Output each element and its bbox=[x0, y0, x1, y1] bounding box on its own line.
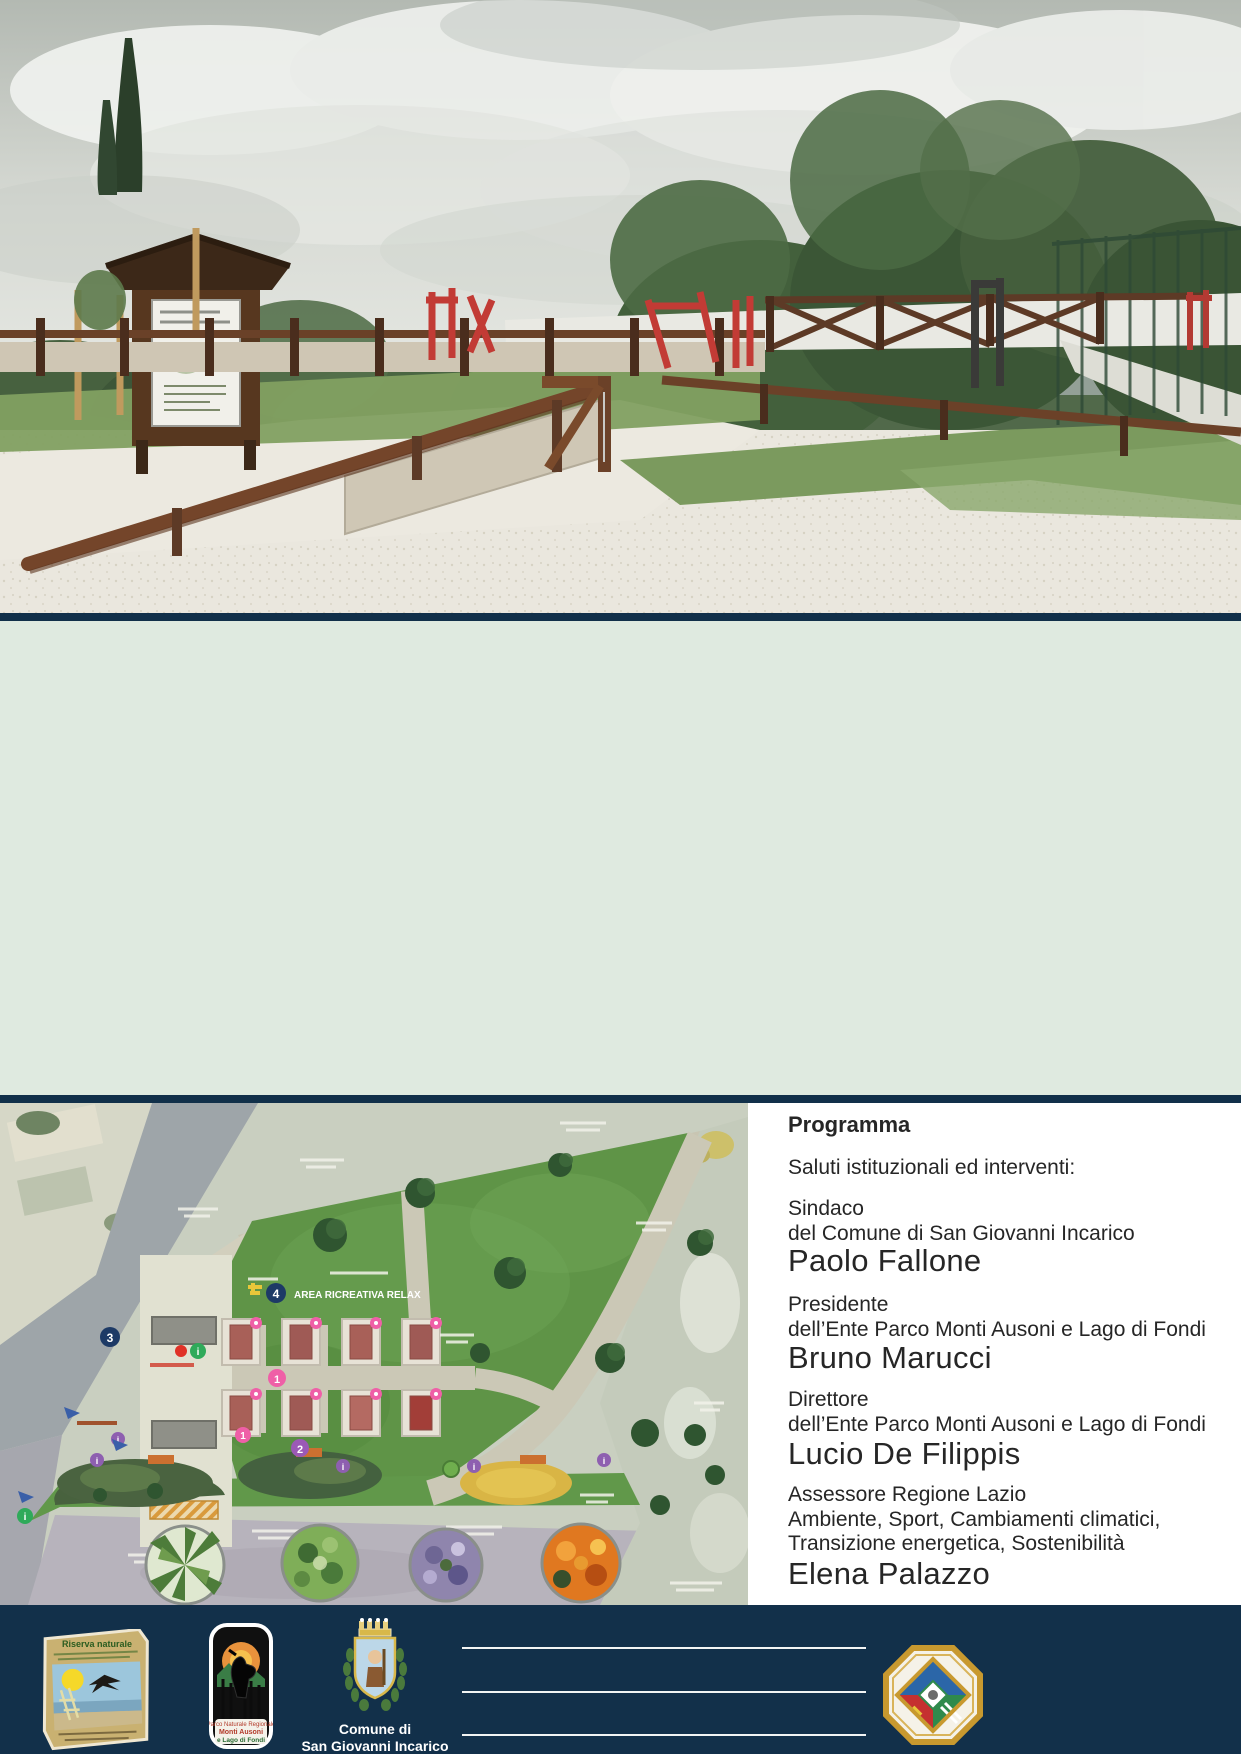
park-photo-illustration bbox=[0, 0, 1241, 617]
program-role-4: Assessore Regione Lazio bbox=[788, 1483, 1026, 1507]
rule-line-2 bbox=[462, 1691, 866, 1693]
divider-middle bbox=[0, 1095, 1241, 1103]
comune-caption-line1: Comune di bbox=[295, 1722, 455, 1737]
svg-text:i: i bbox=[342, 1462, 345, 1472]
program-role-3: Direttore bbox=[788, 1388, 869, 1412]
marker-2: 2 bbox=[297, 1444, 303, 1456]
program-intro: Saluti istituzionali ed interventi: bbox=[788, 1156, 1075, 1180]
program-org-3: dell’Ente Parco Monti Ausoni e Lago di F… bbox=[788, 1413, 1206, 1437]
program-role-1: Sindaco bbox=[788, 1197, 864, 1221]
divider-top bbox=[0, 613, 1241, 621]
footer-bar: Riserva naturale Parco Naturale Regional… bbox=[0, 1605, 1241, 1754]
program-org-4a: Ambiente, Sport, Cambiamenti climatici, bbox=[788, 1508, 1160, 1532]
parco-logo-line3: e Lago di Fondi bbox=[217, 1737, 265, 1744]
svg-text:i: i bbox=[96, 1456, 99, 1466]
crown-icon bbox=[359, 1618, 391, 1636]
orange-flowers-circle bbox=[542, 1524, 620, 1602]
program-name-2: Bruno Marucci bbox=[788, 1340, 992, 1376]
marker-4: 4 bbox=[273, 1287, 280, 1301]
program-name-3: Lucio De Filippis bbox=[788, 1436, 1021, 1472]
svg-text:i: i bbox=[473, 1462, 476, 1472]
svg-text:i: i bbox=[603, 1456, 606, 1466]
marker-3: 3 bbox=[107, 1331, 114, 1345]
riserva-naturale-logo: Riserva naturale bbox=[41, 1629, 154, 1751]
regione-lazio-emblem bbox=[883, 1645, 983, 1745]
comune-caption-line2: San Giovanni Incarico bbox=[295, 1739, 455, 1754]
marker-1b: 1 bbox=[240, 1431, 246, 1442]
agave-circle bbox=[146, 1526, 224, 1604]
park-site-plan: 3 4 AREA RICREATIVA RELAX i 1 1 2 i i i bbox=[0, 1103, 748, 1605]
marker-1: 1 bbox=[274, 1374, 280, 1386]
program-name-4: Elena Palazzo bbox=[788, 1556, 990, 1592]
hero-photo bbox=[0, 0, 1241, 617]
parco-logo-line2: Monti Ausoni bbox=[219, 1729, 263, 1736]
program-heading: Programma bbox=[788, 1112, 910, 1138]
program-name-1: Paolo Fallone bbox=[788, 1243, 981, 1279]
leafy-circle bbox=[282, 1525, 358, 1601]
title-banner: Inaugurazione FITNESS PARK Percorso per … bbox=[0, 621, 1241, 1095]
marker-info-green: i bbox=[197, 1347, 200, 1358]
marker-info-green-2: i bbox=[24, 1512, 27, 1523]
comune-crest-logo bbox=[340, 1615, 410, 1721]
event-poster: Inaugurazione FITNESS PARK Percorso per … bbox=[0, 0, 1241, 1754]
lavender-circle bbox=[410, 1529, 482, 1601]
rule-line-3 bbox=[462, 1734, 866, 1736]
rule-line-1 bbox=[462, 1647, 866, 1649]
parco-logo-line1: Parco Naturale Regionale bbox=[209, 1722, 273, 1728]
program-org-2: dell’Ente Parco Monti Ausoni e Lago di F… bbox=[788, 1318, 1206, 1342]
program-role-2: Presidente bbox=[788, 1293, 888, 1317]
riserva-logo-title: Riserva naturale bbox=[62, 1639, 132, 1649]
lower-section: 3 4 AREA RICREATIVA RELAX i 1 1 2 i i i bbox=[0, 1103, 1241, 1605]
program-org-4b: Transizione energetica, Sostenibilità bbox=[788, 1532, 1125, 1556]
area-ricreativa-label: AREA RICREATIVA RELAX bbox=[294, 1290, 421, 1301]
parco-monti-ausoni-logo: Parco Naturale Regionale Monti Ausoni e … bbox=[209, 1623, 273, 1749]
